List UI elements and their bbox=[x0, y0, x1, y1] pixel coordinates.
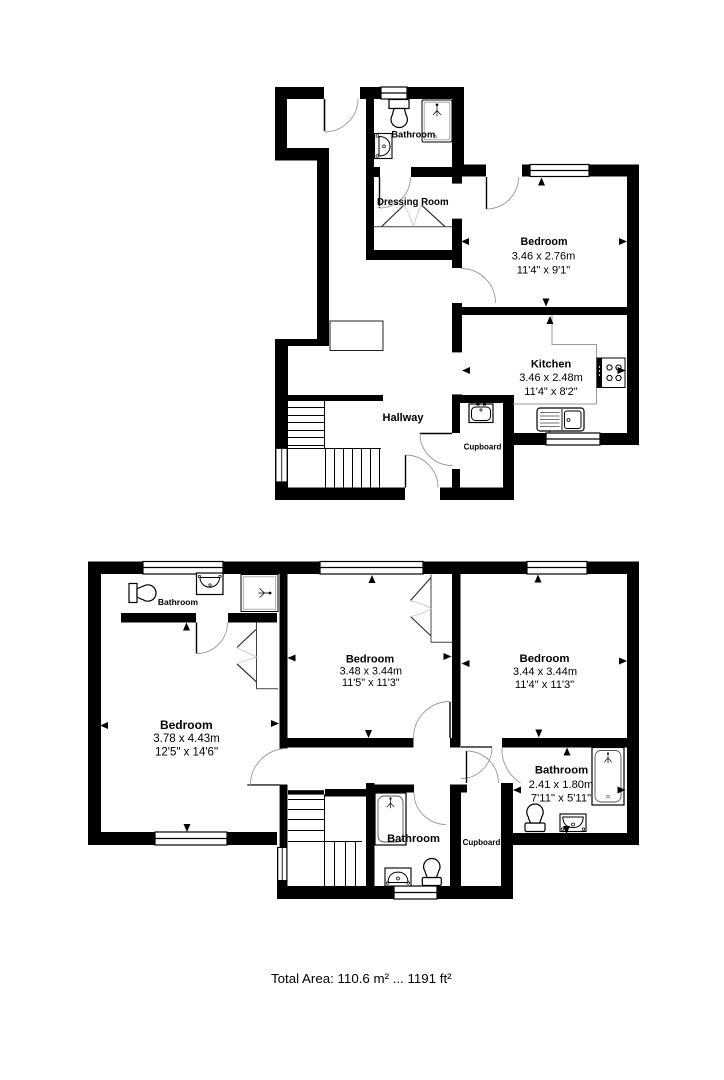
svg-text:3.78 x 4.43m: 3.78 x 4.43m bbox=[153, 733, 219, 745]
svg-text:Bedroom: Bedroom bbox=[521, 236, 568, 248]
svg-text:Bathroom: Bathroom bbox=[391, 129, 435, 139]
svg-text:Cupboard: Cupboard bbox=[464, 443, 502, 452]
svg-text:Total Area: 110.6 m² ... 1191: Total Area: 110.6 m² ... 1191 ft² bbox=[271, 971, 452, 986]
svg-text:Cupboard: Cupboard bbox=[463, 838, 501, 847]
svg-text:Dressing Room: Dressing Room bbox=[377, 197, 449, 208]
svg-text:11'4" x 9'1": 11'4" x 9'1" bbox=[517, 265, 570, 277]
svg-text:11'4" x 11'3": 11'4" x 11'3" bbox=[515, 679, 574, 691]
svg-text:3.46 x 2.48m: 3.46 x 2.48m bbox=[519, 372, 583, 384]
svg-text:Kitchen: Kitchen bbox=[531, 359, 572, 371]
svg-text:Bedroom: Bedroom bbox=[520, 653, 570, 665]
svg-text:11'5" x 11'3": 11'5" x 11'3" bbox=[342, 677, 400, 689]
svg-text:Bedroom: Bedroom bbox=[160, 718, 213, 732]
svg-text:Bedroom: Bedroom bbox=[346, 654, 395, 666]
svg-text:3.44 x 3.44m: 3.44 x 3.44m bbox=[513, 666, 577, 678]
svg-text:3.48 x 3.44m: 3.48 x 3.44m bbox=[340, 665, 402, 677]
svg-text:Hallway: Hallway bbox=[383, 412, 425, 424]
svg-text:Bathroom: Bathroom bbox=[387, 833, 440, 845]
svg-text:11'4" x 8'2": 11'4" x 8'2" bbox=[524, 386, 577, 398]
svg-text:Bathroom: Bathroom bbox=[535, 765, 588, 777]
svg-text:3.46 x 2.76m: 3.46 x 2.76m bbox=[512, 251, 576, 263]
svg-text:12'5" x 14'6": 12'5" x 14'6" bbox=[155, 746, 218, 758]
svg-text:2.41 x 1.80m: 2.41 x 1.80m bbox=[529, 779, 594, 791]
svg-text:Bathroom: Bathroom bbox=[158, 597, 199, 607]
svg-text:7'11" x 5'11": 7'11" x 5'11" bbox=[531, 793, 591, 805]
